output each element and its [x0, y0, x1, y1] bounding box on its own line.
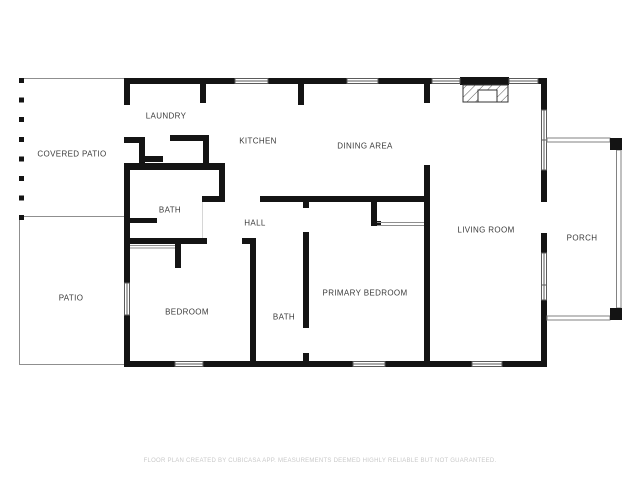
room-label-kitchen: KITCHEN: [239, 137, 277, 146]
floor-plan: COVERED PATIO LAUNDRY KITCHEN DINING ARE…: [0, 0, 640, 480]
porch-rail: [547, 138, 610, 142]
room-label-bath-2: BATH: [273, 313, 295, 322]
patio-outline: [19, 79, 124, 366]
floor-plan-drawing: [0, 0, 640, 480]
room-label-porch: PORCH: [567, 234, 598, 243]
porch-structure: [547, 138, 622, 320]
room-label-patio: PATIO: [59, 294, 84, 303]
porch-rail: [617, 150, 622, 308]
porch-post-icon: [610, 308, 622, 320]
porch-post-icon: [610, 138, 622, 150]
room-label-dining-area: DINING AREA: [337, 142, 392, 151]
footer-disclaimer: FLOOR PLAN CREATED BY CUBICASA APP. MEAS…: [144, 458, 497, 464]
room-label-primary-bedroom: PRIMARY BEDROOM: [323, 289, 408, 298]
fireplace-icon: [463, 85, 508, 102]
room-label-bath: BATH: [159, 206, 181, 215]
exterior-walls: [124, 77, 547, 367]
room-label-covered-patio: COVERED PATIO: [37, 150, 106, 159]
windows: [125, 79, 548, 367]
room-label-hall: HALL: [244, 219, 265, 228]
porch-rail: [547, 316, 610, 320]
room-label-living-room: LIVING ROOM: [457, 226, 514, 235]
room-label-bedroom: BEDROOM: [165, 308, 209, 317]
room-label-laundry: LAUNDRY: [146, 112, 187, 121]
